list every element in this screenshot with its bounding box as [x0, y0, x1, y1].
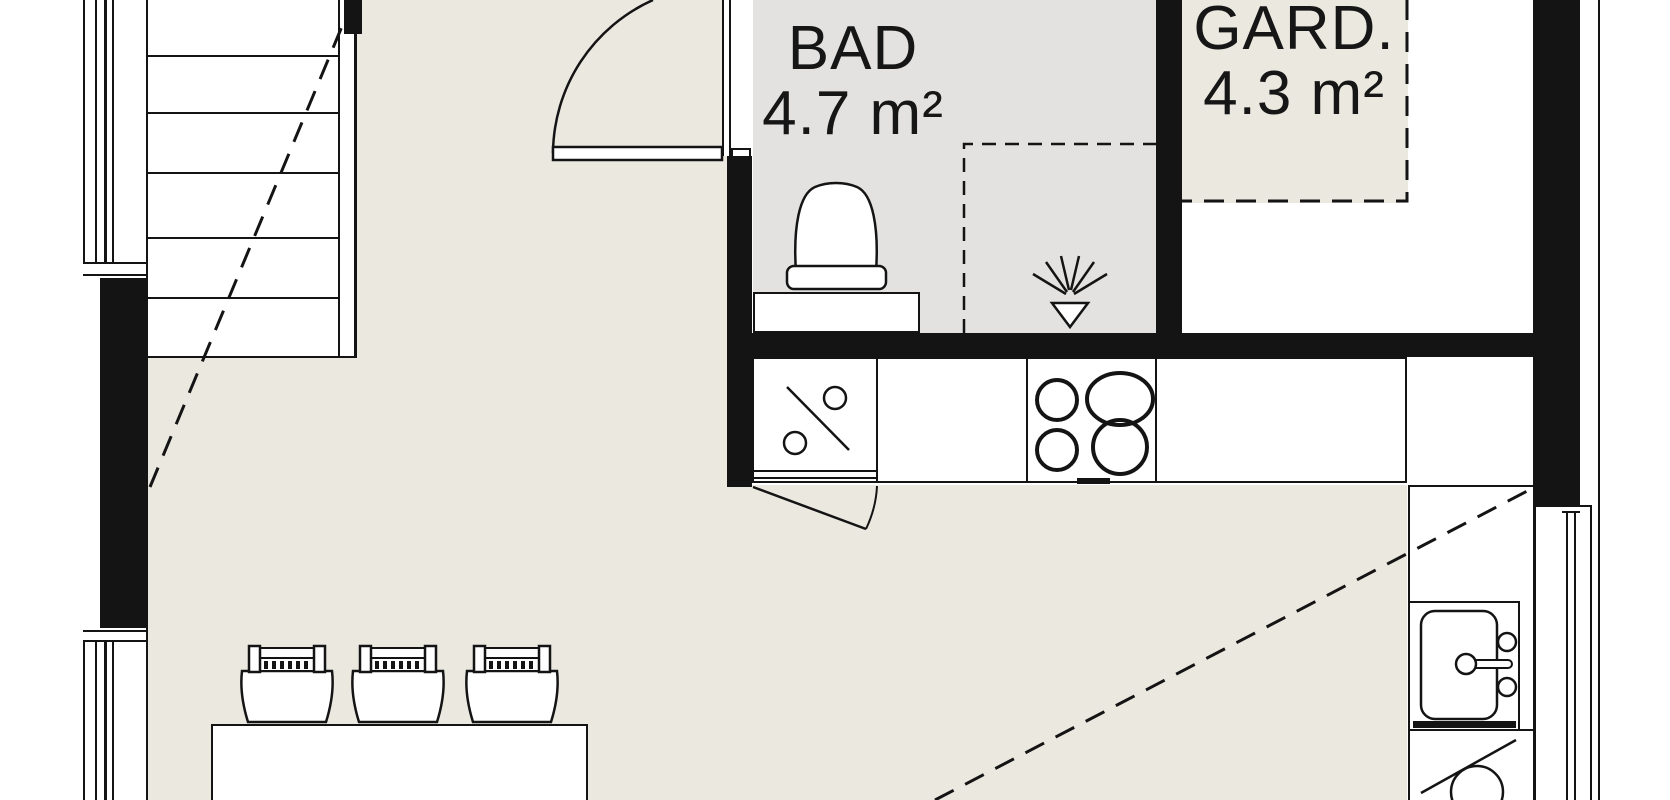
open-cabinet-door	[753, 486, 877, 529]
plan-graphics	[0, 0, 1670, 800]
chair	[466, 646, 557, 722]
shower-head-icon	[1033, 256, 1107, 327]
kitchen-sink	[1421, 611, 1516, 719]
dishwasher-symbol	[784, 387, 849, 454]
chair	[352, 646, 443, 722]
bathroom-door	[553, 0, 722, 160]
stair-direction-dashed-line	[150, 0, 353, 487]
chair	[241, 646, 332, 722]
floor-plan: BAD 4.7 m² GARD. 4.3 m²	[0, 0, 1670, 800]
cooktop	[1037, 373, 1153, 484]
gard-closet-dashed-outline	[1182, 0, 1407, 201]
toilet	[787, 183, 886, 289]
appliance-symbol	[1421, 740, 1516, 800]
